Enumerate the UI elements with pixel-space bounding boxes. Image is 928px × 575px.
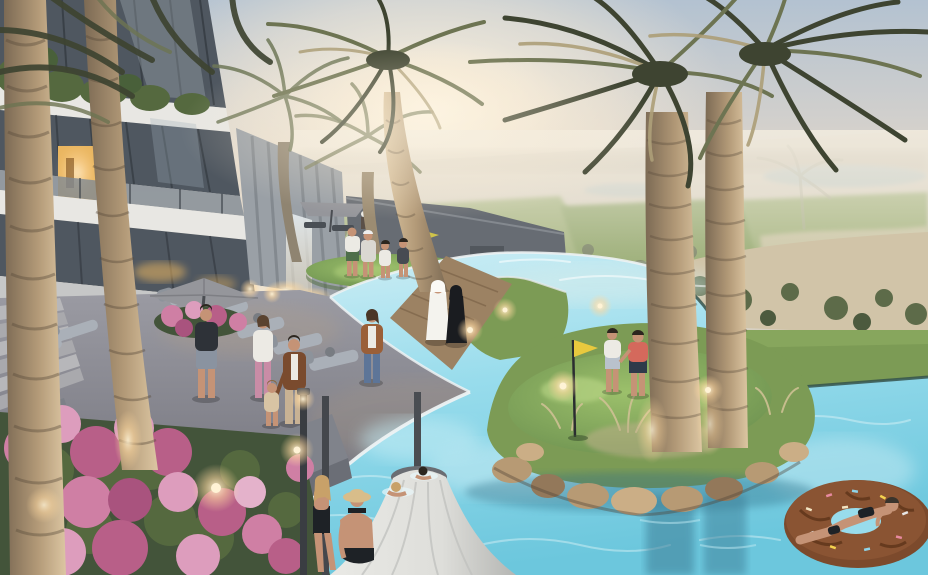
rendering-canvas bbox=[0, 0, 928, 575]
bollard-light bbox=[588, 294, 612, 318]
trunk-uplight bbox=[26, 487, 62, 523]
step-light bbox=[240, 279, 260, 299]
island-light bbox=[693, 375, 723, 405]
island-light bbox=[547, 370, 579, 402]
atmosphere-glow bbox=[180, 40, 660, 220]
ground-light bbox=[280, 433, 314, 467]
bollard-light bbox=[493, 298, 517, 322]
step-light bbox=[263, 285, 281, 303]
donut-float bbox=[784, 480, 928, 568]
ground-light bbox=[192, 464, 240, 512]
bollard-light bbox=[457, 317, 483, 343]
resort-rendering bbox=[0, 0, 928, 575]
